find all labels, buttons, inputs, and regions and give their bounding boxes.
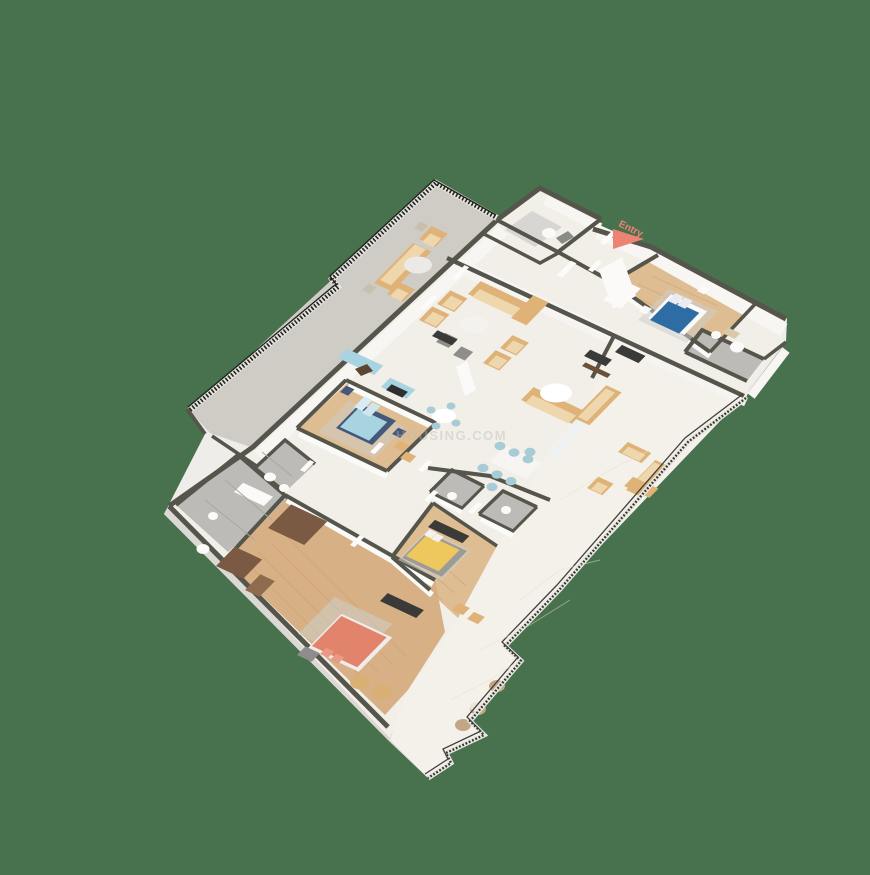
svg-text:HOUSING.COM: HOUSING.COM: [396, 428, 507, 443]
